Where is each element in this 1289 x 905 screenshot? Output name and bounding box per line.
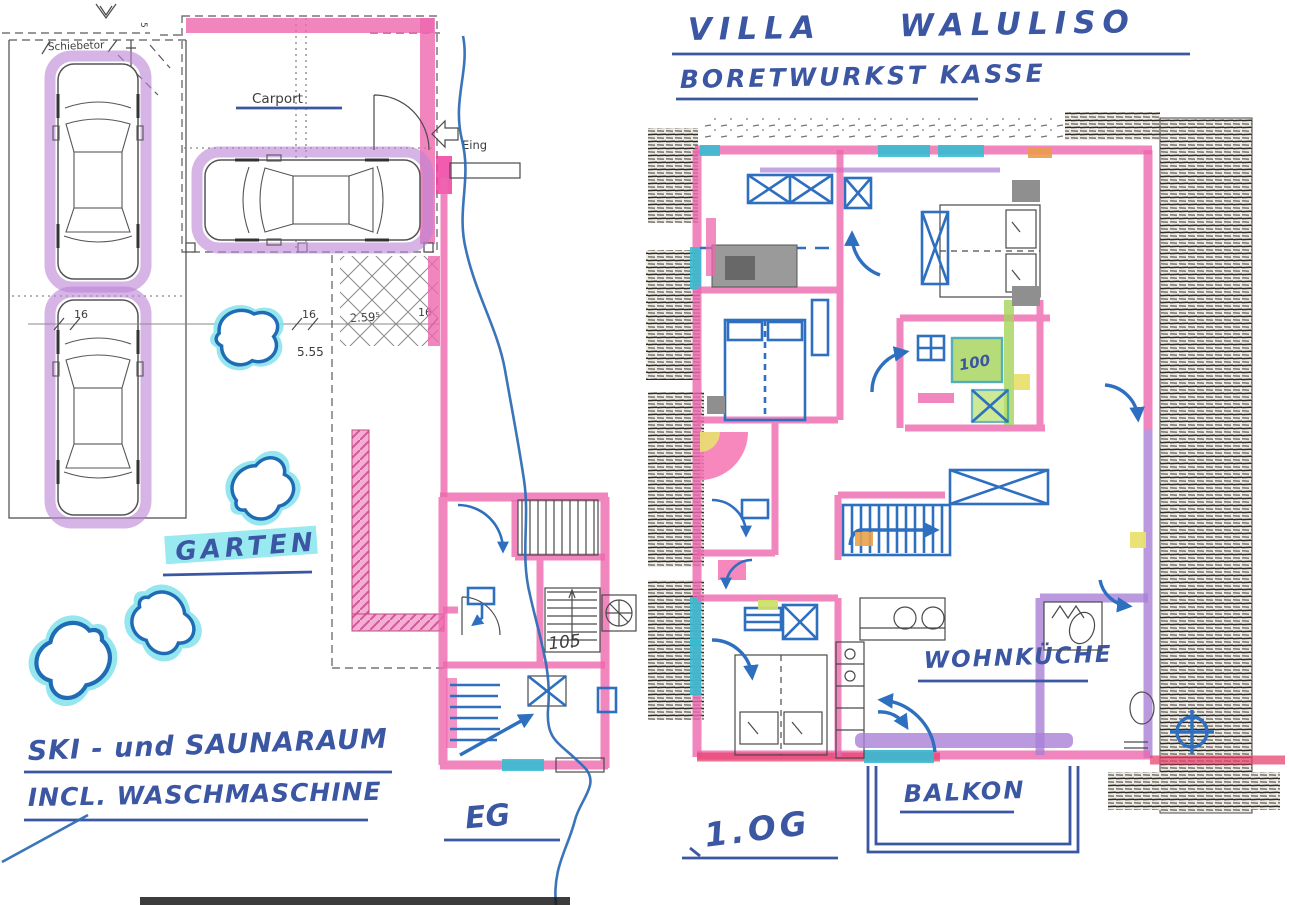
- door-swing: [712, 640, 752, 676]
- tv: [725, 256, 755, 280]
- shelf: [745, 608, 781, 630]
- dim-555: 5.55: [297, 345, 324, 359]
- title-line1: VILLA WALULISO: [688, 4, 1137, 48]
- bench: [855, 733, 1073, 748]
- entrance-hatch-wall: [450, 163, 520, 178]
- dim-16-left: 16: [74, 308, 88, 321]
- car: [50, 292, 146, 523]
- bush: [225, 453, 301, 527]
- staircase-upper: [518, 500, 598, 555]
- terrace: [332, 255, 448, 668]
- window: [502, 759, 544, 771]
- site-plan-eg: 5 6 Schiebetor: [2, 4, 636, 862]
- bathroom-left: [700, 432, 768, 586]
- eg-label: EG: [464, 798, 512, 837]
- title-line2: BORETWURKST KASSE: [680, 59, 1046, 94]
- door-swing: [458, 505, 503, 550]
- bedroom-bottom-left: [712, 600, 827, 755]
- nightstand: [1012, 180, 1040, 202]
- ski-room: [446, 676, 616, 772]
- title-block: VILLA WALULISO BORETWURKST KASSE: [672, 4, 1190, 99]
- kitchen-label: WOHNKÜCHE: [923, 640, 1113, 675]
- og-label-group: 1.OG: [682, 803, 838, 858]
- garden-wall: [352, 430, 369, 630]
- car: [197, 152, 428, 248]
- switch-orange: [855, 532, 873, 546]
- wohnkueche: WOHNKÜCHE: [855, 640, 1113, 752]
- room-105-label: 105: [547, 631, 581, 654]
- scan-edge-artifact: [140, 897, 570, 905]
- note-line2: INCL. WASCHMASCHINE: [28, 777, 382, 812]
- staircase-105: 105: [545, 588, 600, 654]
- scanned-floor-plan-page: 5 6 Schiebetor: [0, 0, 1289, 905]
- carport: Carport: [182, 16, 437, 252]
- nightstand: [1012, 286, 1040, 306]
- bedroom-mid-left: [707, 320, 805, 420]
- dim-16-mid: 16: [302, 308, 316, 321]
- bedroom-top-right: [852, 180, 1040, 306]
- pillow: [1006, 210, 1036, 248]
- carport-label: Carport: [252, 91, 303, 107]
- door-swing: [1105, 385, 1138, 418]
- door-swing: [878, 712, 906, 726]
- pillow: [728, 322, 762, 340]
- bathroom-bottom-right: [1044, 385, 1154, 748]
- notes: SKI - und SAUNARAUM INCL. WASCHMASCHINE: [2, 724, 392, 862]
- eg-building: 105: [440, 497, 636, 772]
- garden-label: GARTEN: [174, 527, 317, 567]
- pillow: [768, 322, 802, 340]
- car: [50, 56, 146, 287]
- upper-floor-plan: VILLA WALULISO BORETWURKST KASSE: [646, 4, 1285, 858]
- staircase-og: [843, 470, 1048, 555]
- roof-hatch: [646, 112, 1280, 813]
- bush: [25, 611, 122, 706]
- bush: [123, 583, 200, 662]
- floor-plan-drawing: 5 6 Schiebetor: [0, 0, 1289, 905]
- balcony-door: [864, 750, 934, 763]
- entrance-label: Eing: [462, 138, 487, 152]
- nightstand: [707, 396, 725, 414]
- garden-label-group: GARTEN: [163, 526, 318, 575]
- shelf: [812, 300, 828, 355]
- wavy-divider-line: [459, 36, 591, 905]
- pillow: [784, 712, 822, 744]
- window-orange: [1028, 147, 1052, 158]
- parking-strip: [9, 40, 186, 523]
- og-label: 1.OG: [702, 803, 813, 855]
- balcony-label: BALKON: [903, 776, 1026, 808]
- carport-wall-top: [186, 18, 434, 33]
- balcony: BALKON: [868, 766, 1078, 852]
- door-swing: [852, 235, 880, 275]
- eg-label-group: EG: [444, 798, 560, 840]
- gate-width-dim: 5: [138, 22, 148, 28]
- garden-wall: [352, 614, 444, 631]
- switch-yellow: [1014, 374, 1030, 390]
- pillow: [740, 712, 778, 744]
- note-line1: SKI - und SAUNARAUM: [27, 724, 388, 768]
- sink: [742, 500, 768, 518]
- switch-yellow: [1130, 532, 1146, 548]
